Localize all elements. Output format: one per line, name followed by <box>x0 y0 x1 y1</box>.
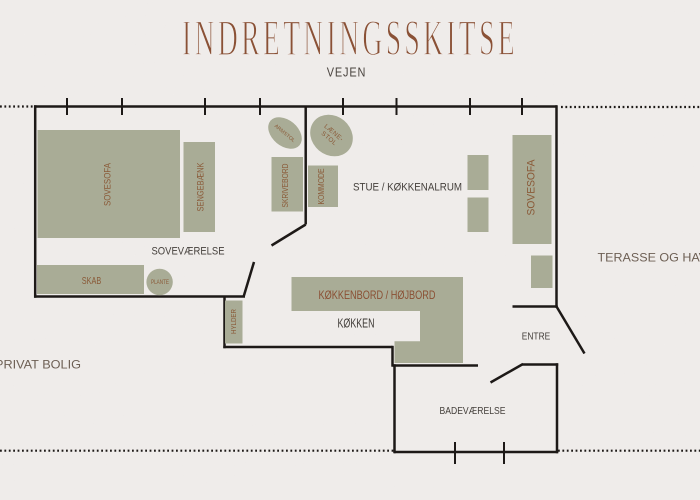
svg-text:SOVESOFA: SOVESOFA <box>102 163 112 206</box>
svg-text:KØKKEN: KØKKEN <box>338 316 375 331</box>
svg-text:TERASSE OG HAVE: TERASSE OG HAVE <box>598 251 700 265</box>
svg-text:SKRIVEBORD: SKRIVEBORD <box>280 164 290 208</box>
svg-text:SOVEVÆRELSE: SOVEVÆRELSE <box>152 246 225 258</box>
svg-text:SOVESOFA: SOVESOFA <box>525 159 537 216</box>
svg-text:KOMMODE: KOMMODE <box>317 169 326 205</box>
svg-text:SKAB: SKAB <box>82 276 102 287</box>
svg-text:PRIVAT BOLIG: PRIVAT BOLIG <box>0 358 81 372</box>
svg-text:INDRETNINGSSKITSE: INDRETNINGSSKITSE <box>182 10 518 66</box>
svg-text:ENTRE: ENTRE <box>522 331 551 343</box>
svg-text:SENGEBÆNK: SENGEBÆNK <box>196 162 207 212</box>
svg-text:VEJEN: VEJEN <box>327 64 367 79</box>
svg-text:PLANTE: PLANTE <box>151 279 169 286</box>
svg-text:KØKKENBORD / HØJBORD: KØKKENBORD / HØJBORD <box>319 288 436 302</box>
svg-text:HYLDER: HYLDER <box>229 309 238 334</box>
svg-text:STUE / KØKKENALRUM: STUE / KØKKENALRUM <box>353 182 462 194</box>
svg-text:BADEVÆRELSE: BADEVÆRELSE <box>440 405 506 417</box>
